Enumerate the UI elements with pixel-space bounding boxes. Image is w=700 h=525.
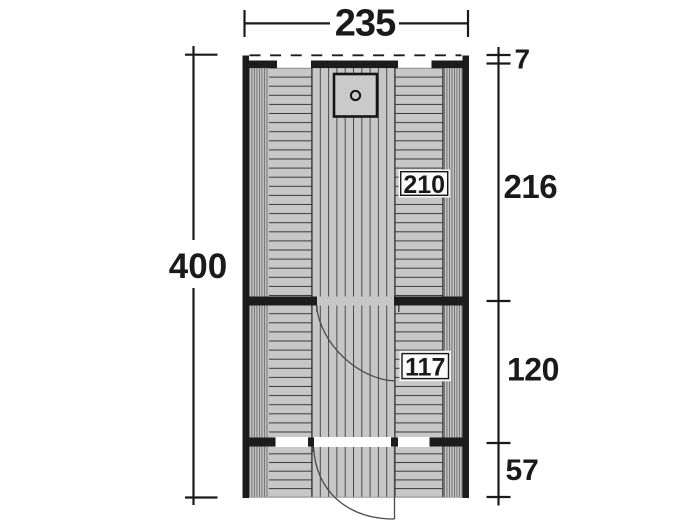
svg-text:117: 117: [405, 353, 445, 381]
svg-text:216: 216: [504, 168, 558, 205]
svg-text:210: 210: [403, 171, 445, 199]
svg-text:120: 120: [507, 351, 559, 387]
svg-text:400: 400: [169, 247, 227, 286]
svg-text:7: 7: [515, 43, 531, 74]
svg-text:57: 57: [506, 454, 539, 487]
svg-text:235: 235: [335, 2, 396, 44]
